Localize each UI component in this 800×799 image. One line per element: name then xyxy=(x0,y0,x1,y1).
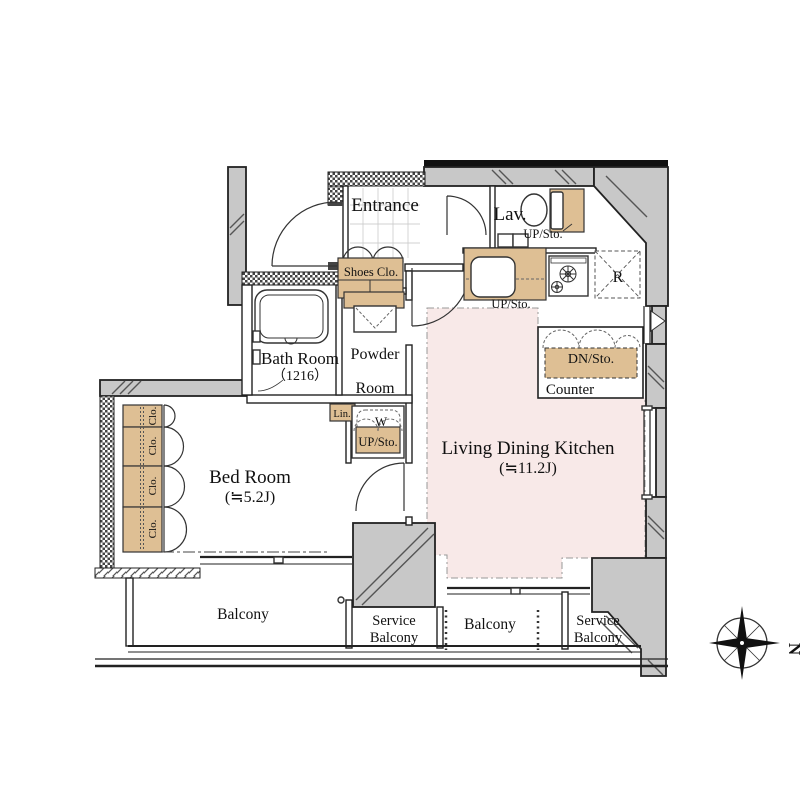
label-entrance: Entrance xyxy=(351,195,419,216)
label-bath-room: Bath Room xyxy=(261,349,339,368)
kitchen-sink-icon xyxy=(471,257,515,297)
right-wall-seg2 xyxy=(646,344,666,408)
label-closet-3: Clo. xyxy=(147,476,159,495)
powder-right-wall-a xyxy=(406,271,412,300)
bedroom-left-wall xyxy=(100,396,114,568)
bathtub-icon xyxy=(255,290,328,343)
compass: N xyxy=(709,606,800,680)
label-ldk-size: (≒11.2J) xyxy=(499,460,557,477)
label-linen: Lin. xyxy=(333,409,350,420)
powder-right-wall-b xyxy=(406,345,412,463)
label-up-sto-washer: UP/Sto. xyxy=(358,435,397,449)
label-north: N xyxy=(785,643,800,656)
bath-top-wall xyxy=(242,272,342,285)
right-wall-seg4 xyxy=(646,497,666,558)
label-service-balcony-right-2: Balcony xyxy=(574,630,623,646)
label-closet-1: Clo. xyxy=(147,406,159,425)
bath-powder-wall xyxy=(336,285,342,395)
drain-symbol xyxy=(338,597,344,603)
entrance-door xyxy=(272,202,337,266)
label-bed-room: Bed Room xyxy=(209,467,291,488)
stove-back xyxy=(551,258,586,263)
label-bath-size: （1216） xyxy=(272,368,328,384)
bottom-left-wall-band xyxy=(95,568,200,578)
bath-left-wall xyxy=(242,285,252,395)
label-up-sto-kitchen: UP/Sto. xyxy=(491,297,530,311)
service-balcony-wall xyxy=(346,600,352,648)
bedroom-wall-stub xyxy=(406,517,412,525)
label-washer: W xyxy=(375,414,388,429)
closet-doors xyxy=(164,405,187,552)
balcony-left-edge xyxy=(126,578,133,646)
entrance-top-wall xyxy=(328,172,425,186)
label-counter: Counter xyxy=(546,382,594,398)
label-bed-size: (≒5.2J) xyxy=(225,489,275,506)
label-closet-2: Clo. xyxy=(147,436,159,455)
center-column xyxy=(353,523,435,607)
balcony-partition xyxy=(437,607,443,648)
window-handle xyxy=(511,588,520,594)
compass-hub xyxy=(740,641,745,646)
right-wall-seg3 xyxy=(656,408,666,497)
bath-control xyxy=(253,331,260,342)
label-balcony-left: Balcony xyxy=(217,606,269,623)
lav-step-box xyxy=(498,234,513,247)
label-powder-1: Powder xyxy=(351,346,401,363)
hall-south-wall xyxy=(405,264,463,271)
bath-control xyxy=(253,350,260,364)
bedroom-door xyxy=(356,463,404,511)
bedroom-top-wall xyxy=(100,380,247,396)
label-service-balcony-left-2: Balcony xyxy=(370,630,419,646)
label-powder-2: Room xyxy=(355,380,395,397)
window-handle xyxy=(274,557,283,563)
label-shoes-closet: Shoes Clo. xyxy=(344,265,398,279)
label-service-balcony-right-1: Service xyxy=(576,613,619,629)
floor-plan: N Entrance Lav. UP/Sto. Shoes Clo. UP/St… xyxy=(0,0,800,799)
label-closet-4: Clo. xyxy=(147,519,159,538)
floor-plan-svg: N Entrance Lav. UP/Sto. Shoes Clo. UP/St… xyxy=(0,0,800,799)
label-dn-sto: DN/Sto. xyxy=(568,352,614,367)
label-ldk: Living Dining Kitchen xyxy=(441,438,615,459)
label-refrigerator: R xyxy=(613,269,624,286)
label-up-sto-lav: UP/Sto. xyxy=(523,227,562,241)
label-balcony-right: Balcony xyxy=(464,616,516,633)
label-service-balcony-left-1: Service xyxy=(372,613,415,629)
top-wall-bar xyxy=(424,160,668,167)
toilet-tank xyxy=(551,192,563,229)
label-lav: Lav. xyxy=(493,204,526,225)
balcony-partition xyxy=(562,592,568,649)
lav-door xyxy=(447,196,486,235)
